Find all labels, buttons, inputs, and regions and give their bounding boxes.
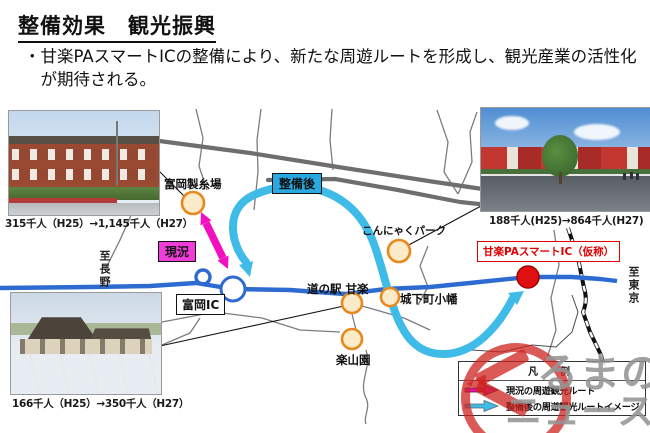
after-route-arrow-icon	[463, 399, 501, 413]
badge-after-improvement: 整備後	[272, 173, 322, 194]
poi-konnyaku-park	[388, 240, 410, 262]
label-michinoeki-kanra: 道の駅 甘楽	[307, 281, 369, 297]
legend-row-current: 現況の周遊観光ルート	[459, 381, 645, 397]
poi-joukamachi-obata	[381, 288, 399, 306]
poi-tomioka-mill	[182, 192, 204, 214]
caption-tomioka-mill: 315千人（H25）→1,145千人（H27）	[5, 216, 193, 231]
photo-michinoeki-kanra	[10, 292, 162, 395]
label-kanra-pa-smart-ic: 甘楽PAスマートIC（仮称）	[477, 241, 620, 262]
poi-circles	[182, 192, 410, 349]
direction-to-nagano: 至長野	[96, 250, 112, 289]
badge-current-state: 現況	[158, 241, 196, 262]
photo-tomioka-silk-mill	[8, 110, 160, 216]
route-after-arrowhead-ic	[239, 261, 253, 277]
direction-to-tokyo: 至東京	[625, 266, 641, 305]
label-konnyaku-park: こんにゃくパーク	[362, 223, 446, 238]
slide-bullet: ・甘楽PAスマートICの整備により、新たな周遊ルートを形成し、観光産業の活性化が…	[24, 46, 645, 92]
photo-konnyaku-park	[480, 107, 650, 212]
legend-label-current: 現況の周遊観光ルート	[506, 383, 595, 397]
kanra-pa-smart-ic-circle	[517, 266, 539, 288]
caption-michinoeki: 166千人（H25）→350千人（H27）	[12, 396, 189, 411]
legend-box: 凡 例 現況の周遊観光ルート 整備後の周遊観光ルートイメージ	[458, 361, 646, 416]
current-route-arrow-icon	[463, 383, 501, 397]
page-title: 整備効果 観光振興	[18, 10, 216, 43]
poi-rakusanen	[342, 329, 362, 349]
label-joukamachi-obata: 城下町小幡	[400, 291, 458, 307]
label-tomioka-mill: 富岡製糸場	[164, 176, 222, 192]
legend-row-after: 整備後の周遊観光ルートイメージ	[459, 397, 645, 413]
slide: 整備効果 観光振興 ・甘楽PAスマートICの整備により、新たな周遊ルートを形成し…	[0, 0, 650, 433]
legend-label-after: 整備後の周遊観光ルートイメージ	[506, 399, 639, 413]
label-tomioka-ic: 富岡IC	[176, 294, 225, 315]
caption-konnyaku-park: 188千人(H25)→864千人(H27)	[489, 213, 643, 228]
legend-title: 凡 例	[459, 362, 645, 381]
route-current-arrow	[201, 212, 229, 269]
label-rakusanen: 楽山園	[336, 352, 371, 368]
ic-ramp-loop	[196, 270, 210, 284]
